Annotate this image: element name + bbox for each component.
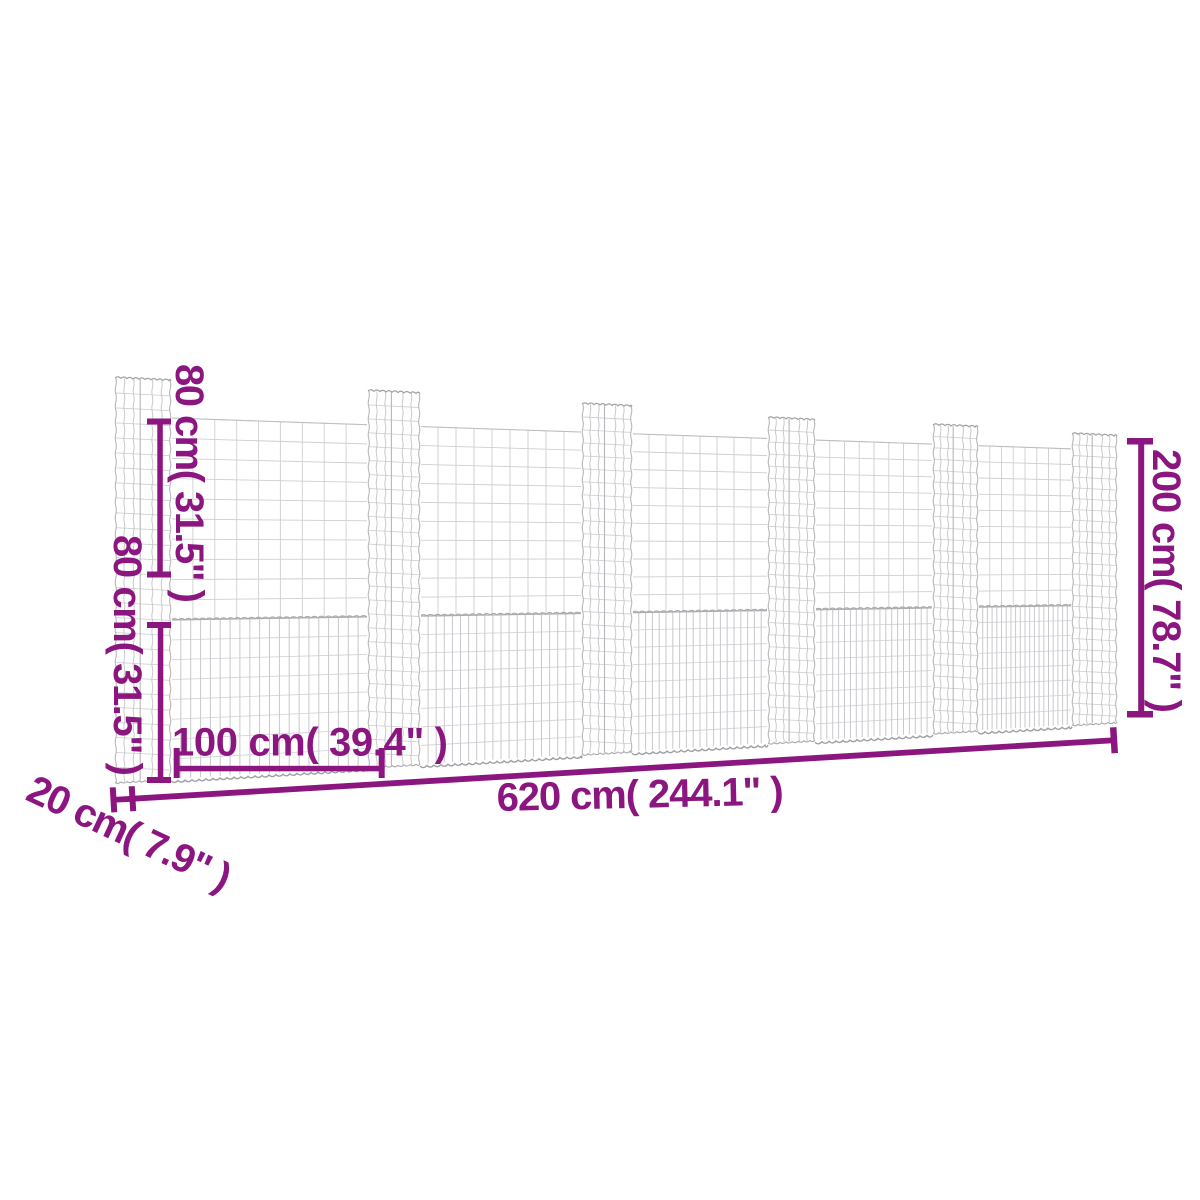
svg-text:200 cm( 78.7" ): 200 cm( 78.7" ) xyxy=(1144,449,1188,713)
svg-text:80 cm( 31.5" ): 80 cm( 31.5" ) xyxy=(105,535,149,776)
svg-text:100 cm( 39.4" ): 100 cm( 39.4" ) xyxy=(172,721,448,765)
svg-text:620 cm( 244.1" ): 620 cm( 244.1" ) xyxy=(496,769,784,819)
svg-text:80 cm( 31.5" ): 80 cm( 31.5" ) xyxy=(167,364,211,603)
